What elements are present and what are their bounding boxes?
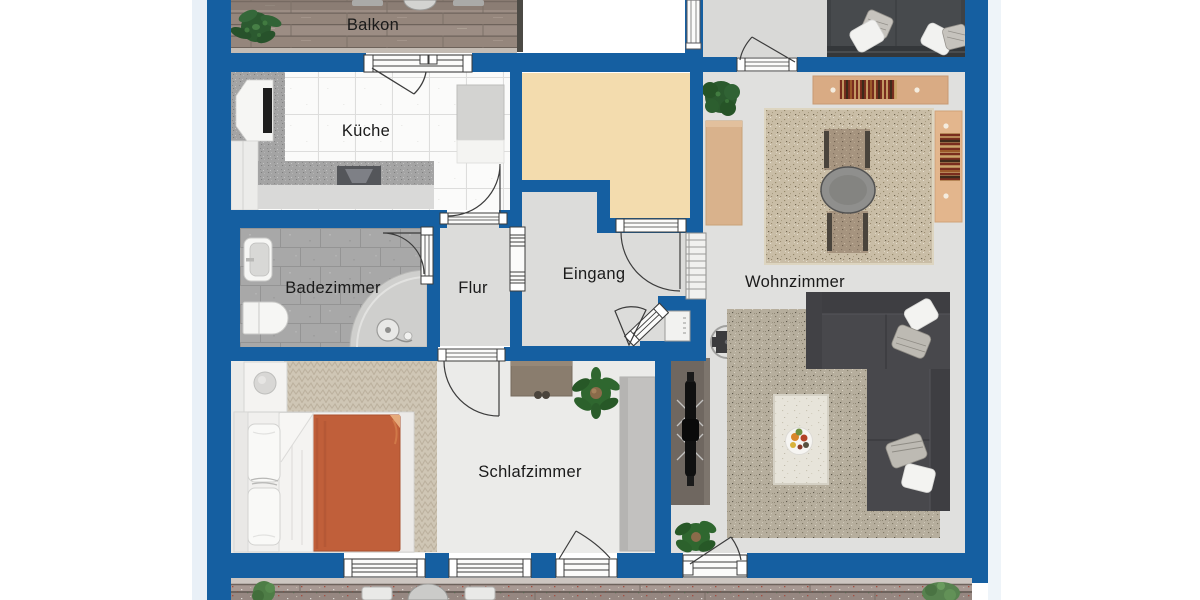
- svg-text:Flur: Flur: [458, 279, 488, 297]
- svg-text:Badezimmer: Badezimmer: [285, 279, 381, 297]
- svg-text:Balkon: Balkon: [347, 16, 399, 34]
- svg-text:Schlafzimmer: Schlafzimmer: [478, 463, 582, 481]
- svg-text:Wohnzimmer: Wohnzimmer: [745, 273, 845, 291]
- svg-text:Küche: Küche: [342, 122, 390, 140]
- svg-text:Eingang: Eingang: [563, 265, 626, 283]
